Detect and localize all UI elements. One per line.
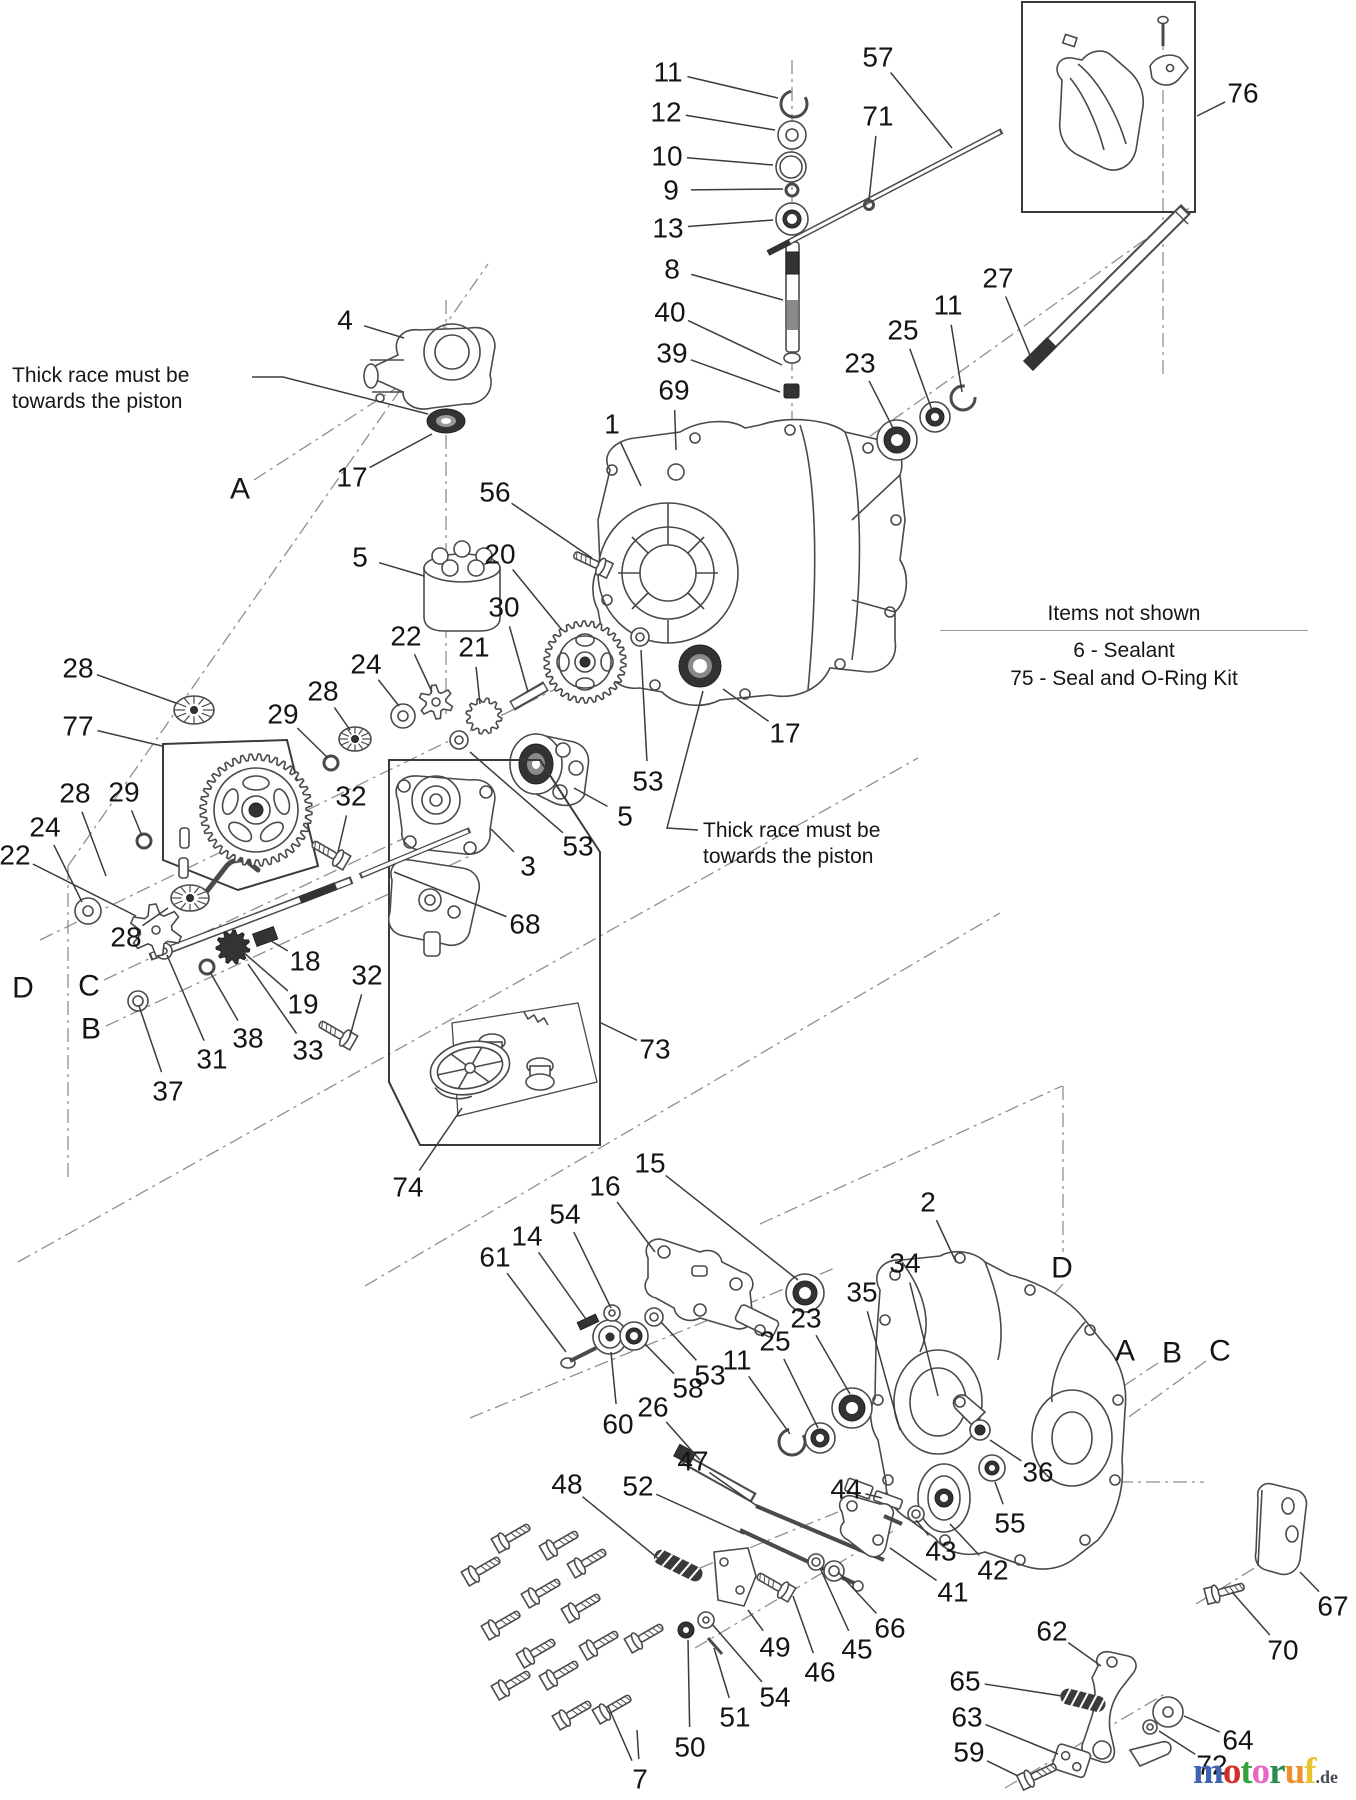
leader-line	[869, 136, 876, 200]
logo-letter: f	[1304, 1751, 1315, 1792]
hex-bolt	[521, 1574, 564, 1609]
leader-line	[266, 938, 288, 951]
o-ring	[137, 834, 151, 848]
parts-artwork	[150, 2, 1307, 1778]
leader-line	[379, 563, 424, 576]
callout-number: 5	[352, 542, 368, 573]
callout-number: 28	[110, 922, 141, 953]
leader-line	[378, 680, 399, 706]
callout-number: 14	[511, 1221, 542, 1252]
leader-line	[838, 1572, 876, 1613]
hex-bolt	[539, 1656, 582, 1691]
gear	[466, 698, 502, 734]
callout-number: 11	[653, 57, 682, 88]
washer	[128, 991, 148, 1011]
callout-number: 48	[551, 1469, 582, 1500]
callout-number: 4	[337, 305, 353, 336]
callout-number: 40	[654, 297, 685, 328]
leader-line	[419, 1108, 462, 1170]
leader-line	[243, 952, 288, 991]
leader-line	[334, 707, 350, 730]
leader-line	[749, 1376, 790, 1434]
callout-number: 50	[674, 1732, 705, 1763]
callout-number: 44	[830, 1474, 861, 1505]
callout-number: 25	[887, 315, 918, 346]
leader-line	[513, 569, 562, 630]
snap-ring	[781, 91, 807, 117]
callout-number: 39	[656, 338, 687, 369]
items-not-shown-box: Items not shown 6 - Sealant 75 - Seal an…	[940, 602, 1308, 693]
callout-number: 69	[658, 375, 689, 406]
callout-number: 63	[951, 1702, 982, 1733]
o-ring	[865, 201, 874, 210]
leader-line	[748, 1610, 763, 1631]
leader-line	[687, 77, 778, 98]
leader-line	[507, 1273, 566, 1352]
callout-number: 8	[664, 254, 680, 285]
callout-number: 49	[759, 1632, 790, 1663]
callout-number: 26	[637, 1392, 668, 1423]
callout-number: 54	[549, 1199, 580, 1230]
leader-line	[611, 1352, 616, 1404]
leader-line	[350, 994, 362, 1036]
callout-number: 13	[652, 213, 683, 244]
leader-line	[691, 189, 783, 190]
small-spring	[524, 1012, 548, 1025]
callout-number: 71	[862, 101, 893, 132]
hex-bolt	[1016, 1758, 1059, 1791]
note-line: Thick race must be	[12, 363, 189, 389]
logo-wordmark: motoruf	[1193, 1751, 1316, 1792]
leader-line	[97, 731, 162, 746]
leader-line	[891, 73, 952, 148]
callout-number: 15	[634, 1148, 665, 1179]
callout-number: 54	[759, 1682, 790, 1713]
callout-number: 22	[0, 840, 31, 871]
note-thick-race-right: Thick race must be towards the piston	[703, 818, 880, 870]
leader-line	[688, 220, 773, 226]
logo-letter: o	[1223, 1751, 1241, 1792]
callout-number: 20	[484, 539, 515, 570]
section-letter: B	[1162, 1337, 1182, 1370]
washer	[1153, 1697, 1183, 1727]
callout-number: 43	[925, 1536, 956, 1567]
washer	[908, 1506, 924, 1522]
hex-bolt	[516, 1634, 559, 1669]
nut-39	[784, 384, 799, 398]
hex-bolt	[561, 1589, 604, 1624]
callout-number: 67	[1317, 1591, 1348, 1622]
callout-number: 29	[267, 699, 298, 730]
callout-number: 57	[862, 42, 893, 73]
bushing-45	[808, 1554, 824, 1570]
note-leader	[667, 691, 703, 830]
leader-line	[210, 972, 238, 1021]
items-not-shown-title: Items not shown	[940, 602, 1308, 631]
leader-line	[686, 115, 775, 130]
callout-number: 28	[307, 676, 338, 707]
callout-number: 19	[287, 989, 318, 1020]
note-line: towards the piston	[703, 844, 880, 870]
latch-part	[1150, 55, 1188, 85]
callout-number: 16	[589, 1171, 620, 1202]
section-letter: A	[230, 473, 250, 506]
leader-line	[687, 158, 773, 165]
callout-number: 21	[458, 632, 489, 663]
callout-number: 65	[949, 1666, 980, 1697]
logo-suffix: .de	[1316, 1767, 1339, 1787]
motoruf-logo: motoruf.de	[1193, 1750, 1338, 1793]
leader-line	[714, 1648, 729, 1698]
leader-line	[869, 381, 893, 428]
leader-line	[784, 1359, 818, 1428]
callout-number: 31	[196, 1044, 227, 1075]
snap-ring	[951, 386, 975, 410]
callout-number: 61	[479, 1242, 510, 1273]
callout-number: 53	[694, 1360, 725, 1391]
callout-number: 53	[632, 766, 663, 797]
washer	[698, 1612, 714, 1628]
hex-bolt	[491, 1519, 534, 1554]
callout-number: 70	[1267, 1635, 1298, 1666]
callout-number: 76	[1227, 78, 1258, 109]
note-line: Thick race must be	[703, 818, 880, 844]
exploded-parts-diagram: 1112109138403969577176271125234A17565203…	[0, 0, 1356, 1800]
callout-number: 5	[617, 801, 633, 832]
callout-number: 25	[759, 1326, 790, 1357]
callout-number: 34	[889, 1248, 920, 1279]
leader-line	[297, 728, 328, 758]
callout-number: 73	[639, 1034, 670, 1065]
washer	[631, 628, 649, 646]
callout-number: 2	[920, 1187, 936, 1218]
leader-line	[691, 360, 780, 392]
callout-number: 7	[632, 1764, 648, 1795]
cover-part-76	[1057, 51, 1143, 170]
leader-line	[661, 1322, 696, 1360]
callout-number: 74	[392, 1172, 423, 1203]
callout-number: 11	[933, 290, 962, 321]
leader-line	[599, 1022, 637, 1040]
leader-line	[1068, 1643, 1101, 1666]
leader-line	[656, 1494, 744, 1534]
callout-number: 11	[722, 1345, 751, 1376]
logo-letter: r	[1269, 1751, 1284, 1792]
section-letter: D	[12, 972, 34, 1005]
callout-number: 24	[29, 812, 60, 843]
callout-number: 29	[108, 777, 139, 808]
callout-number: 41	[937, 1577, 968, 1608]
callout-number: 32	[335, 781, 366, 812]
hex-bolt	[624, 1619, 667, 1654]
o-ring	[324, 756, 338, 770]
callout-number: 60	[602, 1409, 633, 1440]
callout-number: 9	[663, 175, 679, 206]
leader-line	[509, 626, 528, 692]
bushing-66	[824, 1561, 844, 1581]
callout-number: 17	[769, 718, 800, 749]
callout-number: 32	[351, 960, 382, 991]
section-letter: C	[1209, 1335, 1231, 1368]
callout-number: 23	[790, 1303, 821, 1334]
section-letter: D	[1051, 1252, 1073, 1285]
leader-line	[617, 1202, 655, 1252]
callout-number: 3	[520, 851, 536, 882]
washer	[75, 898, 101, 924]
callout-number: 77	[62, 711, 93, 742]
leader-line	[139, 1006, 162, 1072]
section-letter: B	[81, 1013, 101, 1046]
hex-bolt	[481, 1606, 524, 1641]
leader-line	[491, 829, 514, 852]
note-line: towards the piston	[12, 389, 189, 415]
leader-line	[364, 326, 404, 338]
star-coupling	[420, 685, 453, 719]
spring-48	[652, 1547, 705, 1583]
leader-line	[709, 1472, 760, 1508]
leader-line	[987, 1761, 1018, 1776]
leader-line	[688, 321, 782, 365]
leader-line	[582, 1497, 660, 1560]
leader-line	[688, 1640, 690, 1727]
callout-number: 37	[152, 1076, 183, 1107]
callout-number: 12	[650, 97, 681, 128]
callout-number: 33	[292, 1035, 323, 1066]
leader-line	[167, 955, 204, 1041]
callout-number: 42	[977, 1555, 1008, 1586]
washer	[604, 1305, 620, 1321]
callout-number: 46	[804, 1657, 835, 1688]
leader-line	[793, 1596, 813, 1653]
callout-number: 1	[604, 409, 620, 440]
mount-bracket-67	[1255, 1484, 1306, 1575]
hex-bolt	[491, 1666, 534, 1701]
callout-number: 47	[677, 1446, 708, 1477]
callout-number: 27	[982, 263, 1013, 294]
leader-line	[370, 434, 432, 468]
item-not-shown: 6 - Sealant	[940, 637, 1308, 665]
callout-number: 55	[994, 1508, 1025, 1539]
callout-number: 17	[336, 462, 367, 493]
leader-line	[985, 1684, 1062, 1696]
leader-line	[1300, 1572, 1319, 1592]
callout-number: 10	[651, 141, 682, 172]
callout-labels: 1112109138403969577176271125234A17565203…	[0, 42, 1349, 1795]
section-letter: A	[1115, 1335, 1135, 1368]
callout-number: 52	[622, 1471, 653, 1502]
section-letter: C	[78, 970, 100, 1003]
leader-line	[1184, 1716, 1220, 1732]
leader-line	[816, 1335, 850, 1394]
callout-number: 18	[289, 946, 320, 977]
callout-number: 28	[59, 778, 90, 809]
callout-number: 56	[479, 477, 510, 508]
washer	[778, 121, 806, 149]
callout-number: 23	[844, 348, 875, 379]
washer	[391, 704, 415, 728]
callout-number: 45	[841, 1634, 872, 1665]
item-not-shown: 75 - Seal and O-Ring Kit	[940, 665, 1308, 693]
logo-letter: u	[1285, 1751, 1305, 1792]
o-ring	[200, 960, 214, 974]
callout-number: 53	[562, 831, 593, 862]
logo-letter: m	[1193, 1751, 1223, 1792]
leader-line	[608, 1706, 632, 1761]
leader-line	[1232, 1592, 1270, 1635]
note-thick-race-left: Thick race must be towards the piston	[12, 363, 189, 415]
leader-line	[414, 654, 432, 692]
callout-number: 66	[874, 1613, 905, 1644]
callout-number: 68	[509, 909, 540, 940]
snap-ring	[779, 1429, 805, 1455]
nut-72	[1143, 1720, 1157, 1734]
leader-line	[910, 349, 932, 410]
callout-number: 28	[62, 653, 93, 684]
leader-line	[986, 1725, 1058, 1754]
washer	[645, 1308, 663, 1326]
leader-line	[951, 325, 962, 392]
leader-line	[574, 1232, 611, 1308]
hex-bolt	[461, 1552, 504, 1587]
leader-line	[97, 675, 176, 703]
leader-line	[512, 503, 592, 558]
logo-letter: t	[1240, 1751, 1251, 1792]
callout-number: 36	[1022, 1457, 1053, 1488]
gear	[216, 930, 250, 964]
callout-number: 38	[232, 1023, 263, 1054]
callout-number: 24	[350, 649, 381, 680]
leader-line	[645, 1344, 674, 1374]
exploded-parts-illustration: 1112109138403969577176271125234A17565203…	[0, 0, 1356, 1800]
callout-number: 59	[953, 1737, 984, 1768]
plate-49	[714, 1548, 756, 1606]
callout-number: 51	[719, 1702, 750, 1733]
leader-line	[637, 1730, 639, 1759]
leader-line	[539, 1252, 588, 1322]
logo-letter: o	[1252, 1751, 1270, 1792]
callout-number: 22	[390, 621, 421, 652]
hex-bolt	[579, 1626, 622, 1661]
washer	[450, 731, 468, 749]
leader-line	[1197, 102, 1225, 116]
hex-bolt	[552, 1696, 595, 1731]
callout-number: 30	[488, 592, 519, 623]
leader-line	[132, 811, 142, 836]
leader-line	[82, 812, 106, 876]
leader-line	[691, 274, 783, 300]
hex-bolt	[753, 1568, 796, 1603]
leader-line	[1006, 296, 1032, 360]
callout-number: 62	[1036, 1616, 1067, 1647]
washer-40	[784, 353, 800, 363]
callout-number: 35	[846, 1277, 877, 1308]
leader-line	[338, 815, 346, 852]
hex-bolt	[567, 1544, 610, 1579]
hex-bolt	[539, 1526, 582, 1561]
